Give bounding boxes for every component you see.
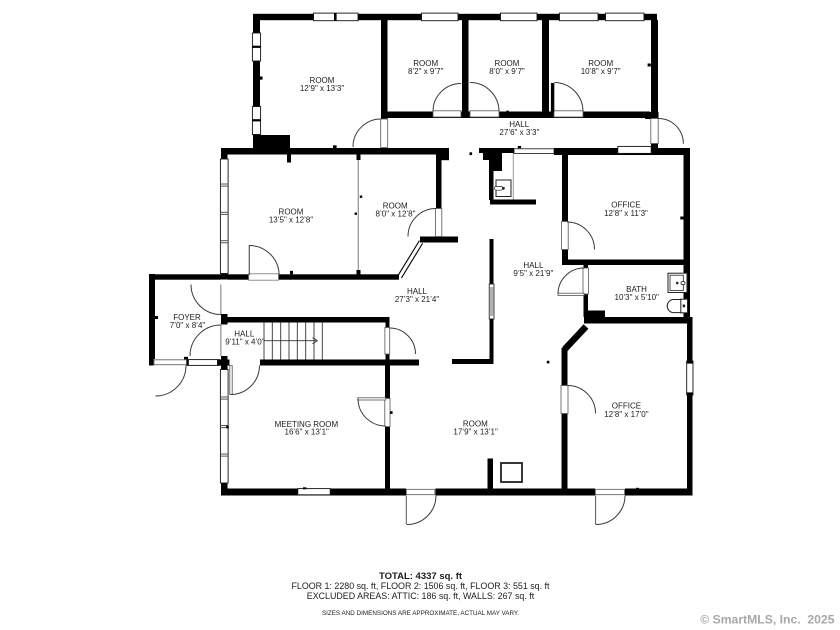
- svg-text:27’6" x 3’3": 27’6" x 3’3": [499, 128, 539, 137]
- svg-text:10’3" x 5’10": 10’3" x 5’10": [615, 293, 660, 302]
- svg-text:12’9" x 13’3": 12’9" x 13’3": [300, 84, 345, 93]
- svg-text:FLOOR 1: 2280 sq. ft, FLOOR 2:: FLOOR 1: 2280 sq. ft, FLOOR 2: 1506 sq. …: [292, 581, 551, 591]
- svg-text:10’8" x 9’7": 10’8" x 9’7": [581, 67, 621, 76]
- svg-text:8’0" x 9’7": 8’0" x 9’7": [489, 67, 525, 76]
- svg-text:16’6" x 13’1": 16’6" x 13’1": [285, 428, 330, 437]
- svg-text:12’8" x 11’3": 12’8" x 11’3": [604, 209, 648, 218]
- svg-text:27’3" x 21’4": 27’3" x 21’4": [395, 295, 440, 304]
- svg-text:9’11" x 4’0": 9’11" x 4’0": [225, 337, 264, 346]
- svg-text:8’0" x 12’8": 8’0" x 12’8": [376, 210, 416, 219]
- svg-text:8’2" x 9’7": 8’2" x 9’7": [408, 67, 444, 76]
- svg-text:7’0" x 8’4": 7’0" x 8’4": [170, 321, 206, 330]
- svg-text:EXCLUDED AREAS: ATTIC: 186 sq.: EXCLUDED AREAS: ATTIC: 186 sq. ft, WALLS…: [307, 591, 535, 601]
- svg-text:12’8" x 17’0": 12’8" x 17’0": [604, 410, 649, 419]
- svg-text:SIZES AND DIMENSIONS ARE APPRO: SIZES AND DIMENSIONS ARE APPROXIMATE, AC…: [322, 610, 519, 617]
- svg-text:© SmartMLS, Inc. 2025: © SmartMLS, Inc. 2025: [700, 613, 835, 627]
- svg-text:13’5" x 12’8": 13’5" x 12’8": [269, 216, 314, 225]
- svg-text:17’9" x 13’1": 17’9" x 13’1": [453, 428, 498, 437]
- svg-text:9’5" x 21’9": 9’5" x 21’9": [513, 269, 553, 278]
